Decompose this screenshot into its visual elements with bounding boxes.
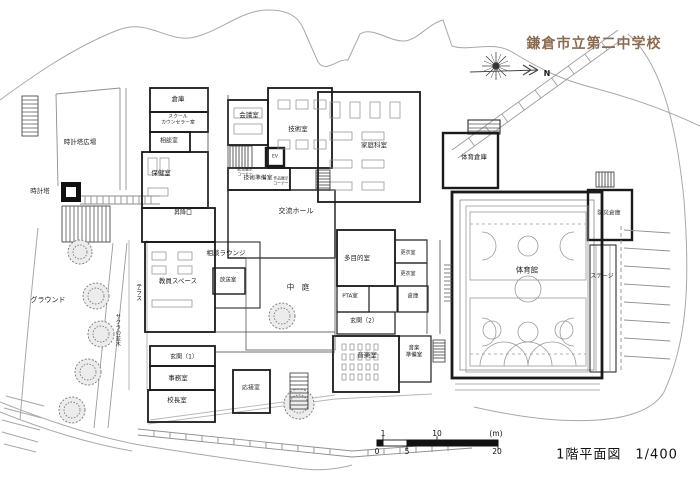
room-label-koui-1: 更衣室 [400,250,415,256]
scale-tick-label: 5 [405,447,410,456]
room-label-pta: PTA室 [342,294,358,301]
room-label-genkan-1: 玄関（1） [170,353,198,360]
site-label-sakura: サクラの並木 [114,314,121,347]
scale-tick-label: 10 [432,429,442,438]
room-label-kyouin-space: 教員スペース [159,278,197,286]
scale-tick-label: 1 [381,429,386,438]
floor-plan-drawing [0,0,700,495]
room-label-souko-a: 倉庫 [172,96,185,104]
site-label-tokeitou: 時計塔 [30,188,50,196]
room-label-counselor: スクールカウンセラー室 [161,114,195,126]
room-label-shoukouguchi: 昇降口 [174,209,192,216]
room-label-kouchou: 校長室 [167,397,187,405]
basketball-court-markings [466,206,588,372]
seating-steps [621,226,670,370]
room-label-sakuhin-corner: 作品展示コーナー [273,176,288,185]
drawing-title: 鎌倉市立第二中学校 [527,33,662,53]
room-label-nakaniwa: 中 庭 [287,283,310,292]
room-label-ongaku-junbi: 音楽準備室 [406,345,423,358]
room-label-hoken: 保健室 [151,170,171,178]
courtyard-tree [269,303,314,419]
room-label-jimu: 事務室 [168,375,188,383]
room-label-bousai-souko: 防災倉庫 [597,211,620,218]
room-label-taiiku-souko: 体育倉庫 [461,154,487,162]
drawing-caption: 1階平面図 1/400 [556,444,678,463]
room-label-soudan-lounge: 相談ラウンジ [207,250,246,258]
floor-plan-canvas: 倉庫スクールカウンセラー室相談室保健室会議室技術室EV記念展示コーナー作品展示コ… [0,0,700,495]
site-label-tokeitou-hiroba: 時計塔広場 [64,139,97,147]
room-label-ongaku: 音楽室 [357,352,377,360]
room-label-gijutsu-junbi: 技術準備室 [244,176,273,183]
school-building-walls [142,88,440,422]
room-label-koui-2: 更衣室 [400,271,415,277]
scale-tick-label: 0 [375,447,380,456]
compass-rose-icon [470,52,538,80]
room-label-soudan: 相談室 [160,137,178,144]
room-label-ev: EV [272,154,278,159]
room-label-ousetsu: 応接室 [242,384,260,391]
scale-tick-label: 20 [492,447,502,456]
room-label-taiikukan: 体育館 [516,266,539,275]
room-label-kateika: 家庭科室 [361,142,387,150]
room-label-housou: 放送室 [220,278,237,285]
room-label-kouryu-hall: 交流ホール [279,207,314,215]
site-label-terrace: テラス [134,283,141,301]
scale-tick-label: (m) [489,429,502,438]
room-label-stage: ステージ [590,274,613,281]
clock-tower [61,182,81,202]
room-label-tamokuteki: 多目的室 [344,255,370,263]
plaza-stairs [22,96,110,242]
room-label-kaigi: 会議室 [239,112,259,120]
north-label: N [544,69,551,79]
room-label-genkan-2: 玄関（2） [350,317,378,324]
site-label-ground: グラウンド [31,296,66,304]
room-label-souko-e: 倉庫 [407,294,418,301]
room-label-gijutsu: 技術室 [288,126,308,134]
sakura-trees [59,240,114,423]
